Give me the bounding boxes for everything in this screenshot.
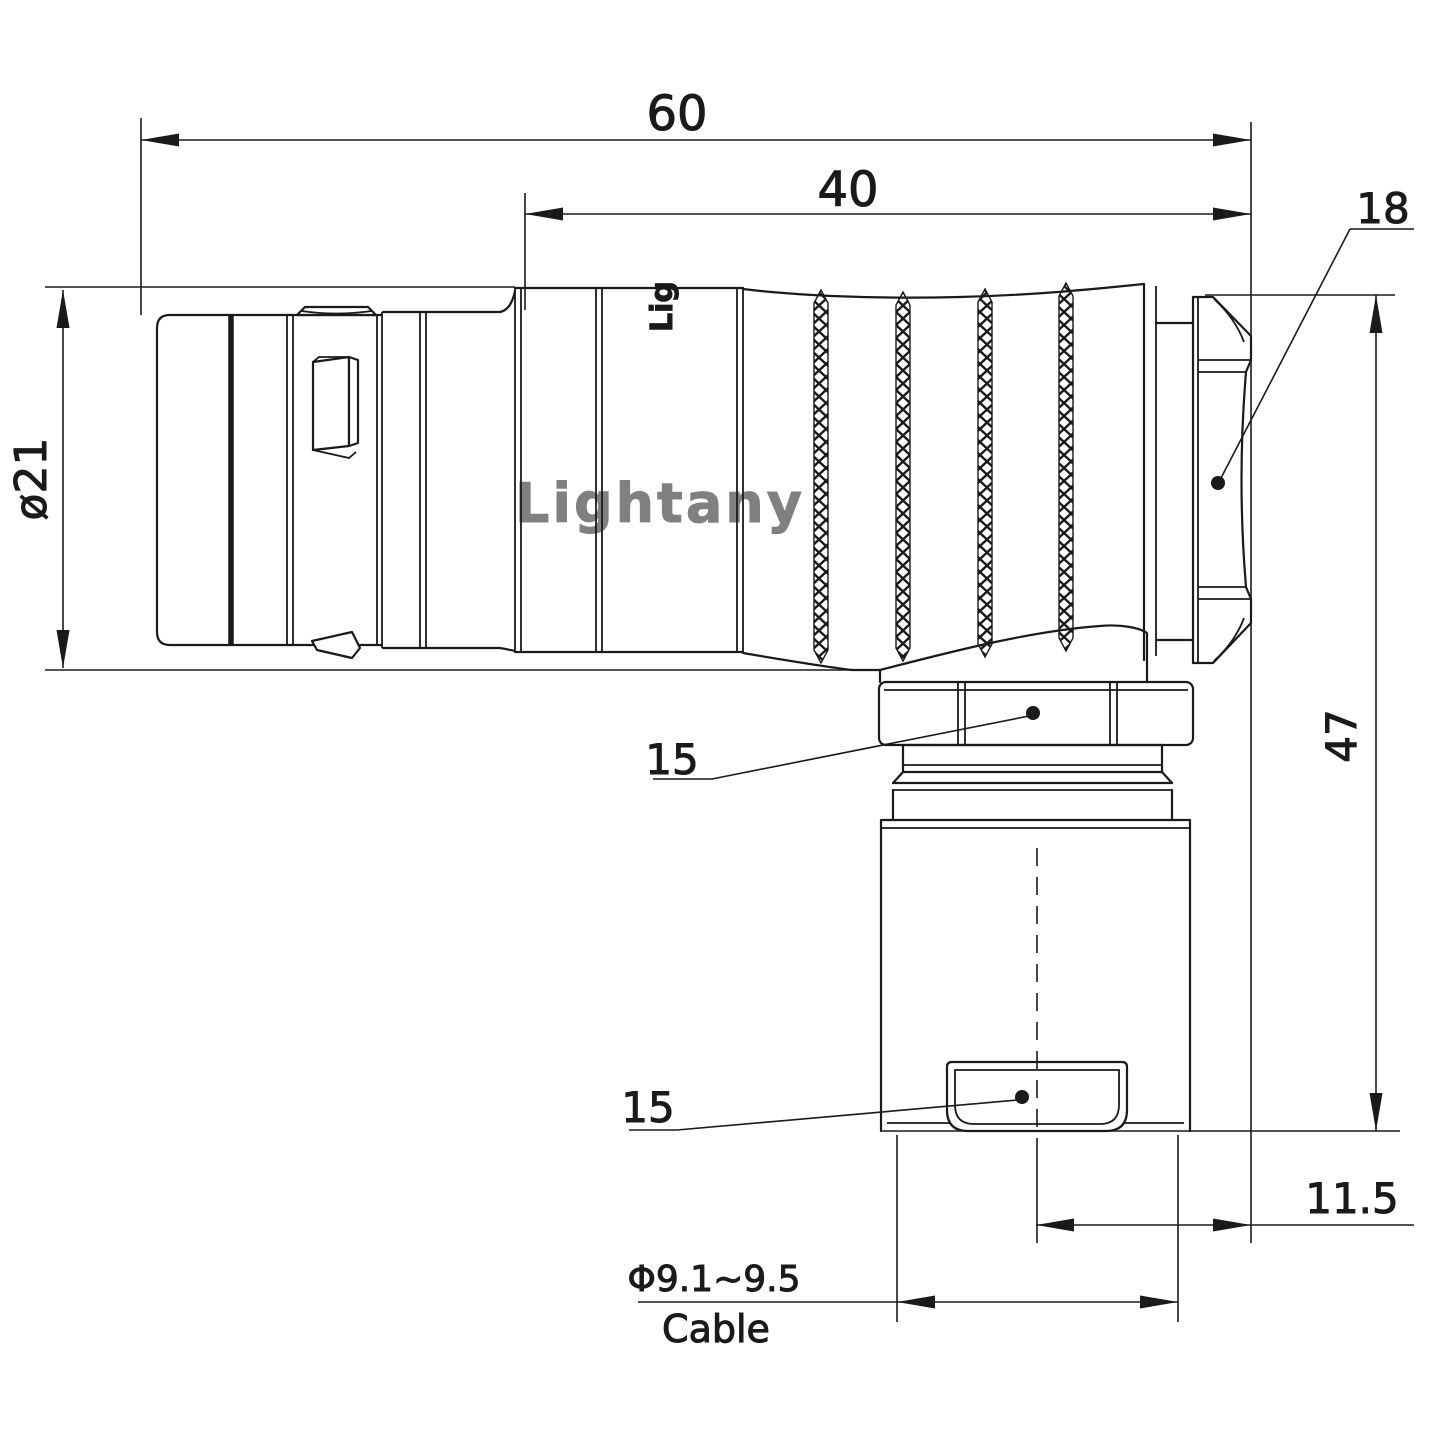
mid-shell <box>383 288 743 652</box>
dim-cable: Φ9.1~9.5 Cable <box>627 1135 1178 1351</box>
leader-bushing-label: 15 <box>621 1083 674 1132</box>
dim-cable-range-label: Φ9.1~9.5 <box>627 1259 800 1300</box>
knurl-band <box>1059 283 1073 651</box>
leader-dot <box>1015 1090 1029 1104</box>
leader-dot <box>1211 476 1225 490</box>
dim-overall-length-label: 60 <box>646 86 707 142</box>
dim-elbow-height-label: 47 <box>1317 709 1366 762</box>
leader-dot <box>1026 706 1040 720</box>
dim-cable-word-label: Cable <box>662 1307 770 1351</box>
connector-side-view: Lig <box>157 281 1400 1243</box>
dim-elbow-height: 47 <box>1205 295 1395 1131</box>
technical-drawing: Lightany <box>0 0 1440 1440</box>
front-shell <box>157 307 382 658</box>
drawing-canvas: Lightany <box>0 0 1440 1440</box>
leader-back-nut-label: 18 <box>1356 184 1409 233</box>
watermark-text: Lightany <box>515 472 805 535</box>
dim-rear-section-label: 40 <box>817 162 878 218</box>
latch-window <box>313 357 358 458</box>
dim-axis-offset-label: 11.5 <box>1305 1174 1399 1223</box>
knurl-band <box>896 292 910 661</box>
dim-shell-diameter-label: ø21 <box>6 438 57 521</box>
knurl-band <box>814 290 828 663</box>
leader-coupling-nut-label: 15 <box>645 735 698 784</box>
rear-neck <box>1156 323 1193 640</box>
cable-bushing <box>881 820 1190 1131</box>
washer-and-flare <box>893 745 1172 820</box>
knurl-band <box>978 289 992 657</box>
shell-logo-mark: Lig <box>645 281 680 332</box>
dim-axis-offset: 11.5 <box>1036 1174 1414 1232</box>
